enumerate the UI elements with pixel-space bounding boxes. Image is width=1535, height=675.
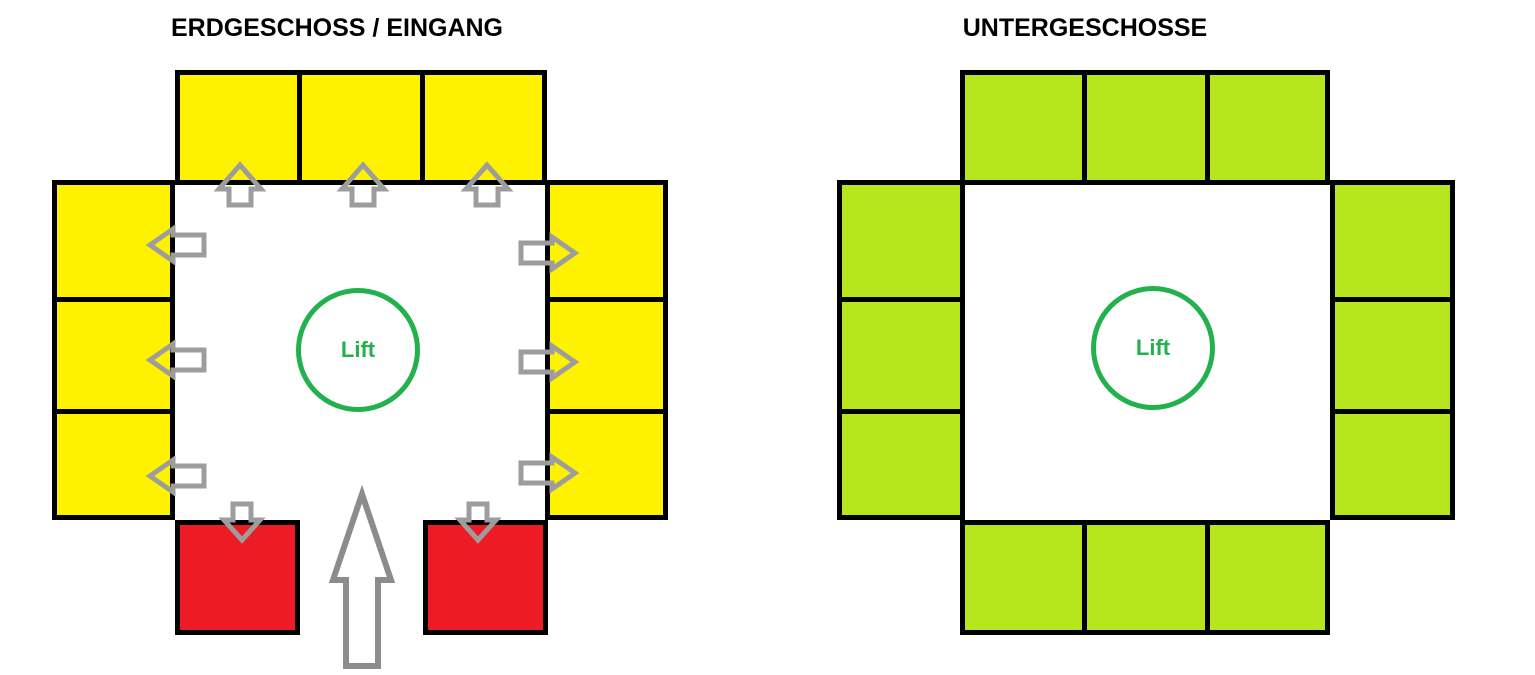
- ug-lift-label: Lift: [1136, 335, 1170, 361]
- arrow-right-icon: [519, 343, 577, 381]
- ug-room-bottom-3: [1205, 520, 1330, 635]
- ug-room-right-3: [1330, 409, 1455, 520]
- arrow-right-icon: [519, 454, 577, 492]
- ug-room-bottom-2: [1082, 520, 1210, 635]
- ug-room-left-1: [837, 180, 965, 302]
- ug-room-left-2: [837, 297, 965, 414]
- floorplan-canvas: ERDGESCHOSS / EINGANG Lift: [0, 0, 1535, 675]
- gf-lift-circle: Lift: [296, 288, 420, 412]
- arrow-right-icon: [519, 234, 577, 272]
- entrance-arrow-icon: [331, 492, 393, 668]
- arrow-left-icon: [148, 226, 206, 264]
- ug-room-top-2: [1082, 70, 1210, 185]
- ug-room-top-1: [960, 70, 1087, 185]
- gf-lift-label: Lift: [341, 337, 375, 363]
- ug-lift-circle: Lift: [1091, 286, 1215, 410]
- ug-room-right-1: [1330, 180, 1455, 302]
- ug-room-bottom-1: [960, 520, 1087, 635]
- ug-room-top-3: [1205, 70, 1330, 185]
- ug-room-right-2: [1330, 297, 1455, 414]
- arrow-up-icon: [340, 162, 386, 208]
- arrow-up-icon: [217, 162, 263, 208]
- ground-floor-title: ERDGESCHOSS / EINGANG: [37, 14, 637, 43]
- arrow-down-icon: [222, 502, 262, 542]
- arrow-down-icon: [458, 502, 498, 542]
- ug-room-left-3: [837, 409, 965, 520]
- arrow-left-icon: [148, 341, 206, 379]
- arrow-up-icon: [464, 162, 510, 208]
- basement-title: UNTERGESCHOSSE: [785, 14, 1385, 43]
- arrow-left-icon: [148, 457, 206, 495]
